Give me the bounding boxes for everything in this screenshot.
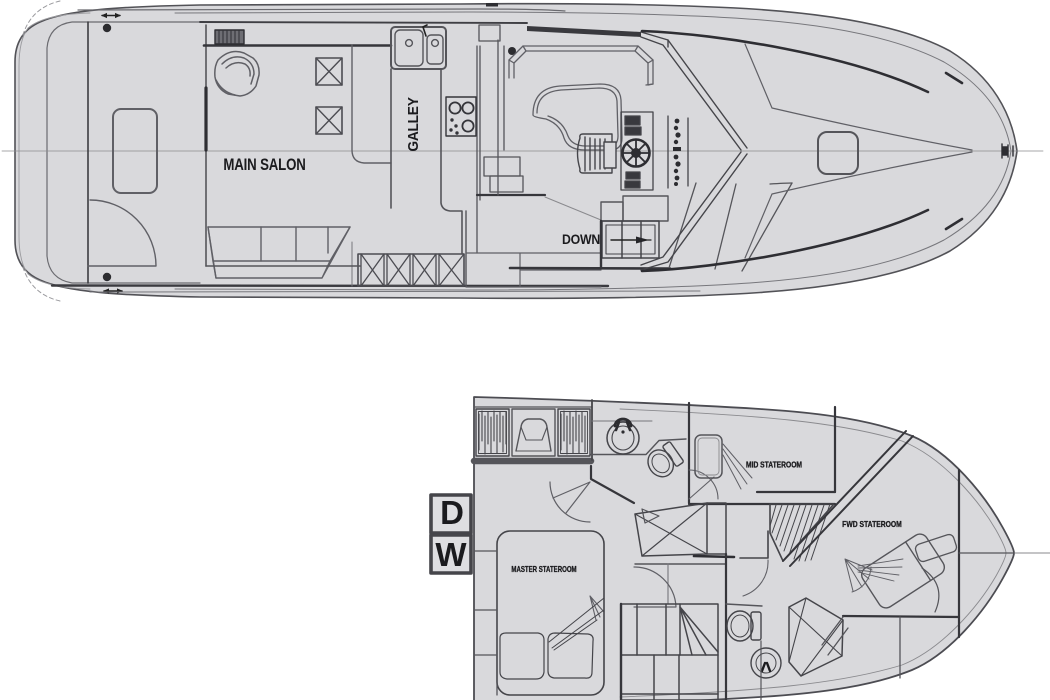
svg-text:FWD STATEROOM: FWD STATEROOM — [842, 519, 902, 529]
svg-text:GALLEY: GALLEY — [406, 97, 423, 152]
svg-text:DOWN: DOWN — [562, 231, 600, 247]
svg-text:MAIN SALON: MAIN SALON — [223, 156, 305, 175]
svg-text:D: D — [440, 494, 464, 531]
svg-text:MID STATEROOM: MID STATEROOM — [746, 460, 802, 470]
svg-text:W: W — [435, 536, 467, 573]
svg-text:MASTER STATEROOM: MASTER STATEROOM — [511, 565, 576, 574]
